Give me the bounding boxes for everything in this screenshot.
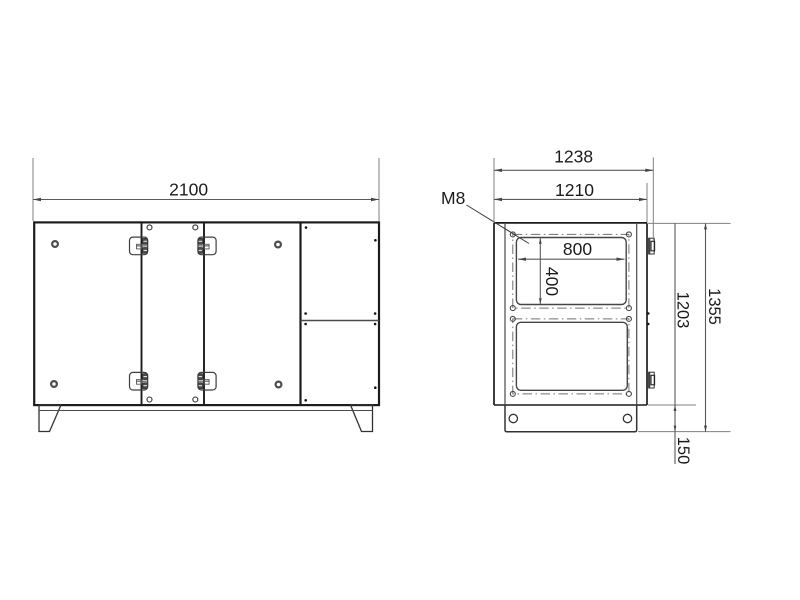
svg-text:1210: 1210 <box>555 180 594 200</box>
svg-text:1238: 1238 <box>554 146 593 166</box>
svg-text:800: 800 <box>563 239 592 259</box>
svg-text:150: 150 <box>674 437 692 465</box>
svg-text:M8: M8 <box>441 188 465 208</box>
svg-text:1355: 1355 <box>705 288 723 325</box>
svg-text:400: 400 <box>542 267 562 296</box>
svg-text:1203: 1203 <box>674 292 692 329</box>
svg-text:2100: 2100 <box>169 179 208 199</box>
